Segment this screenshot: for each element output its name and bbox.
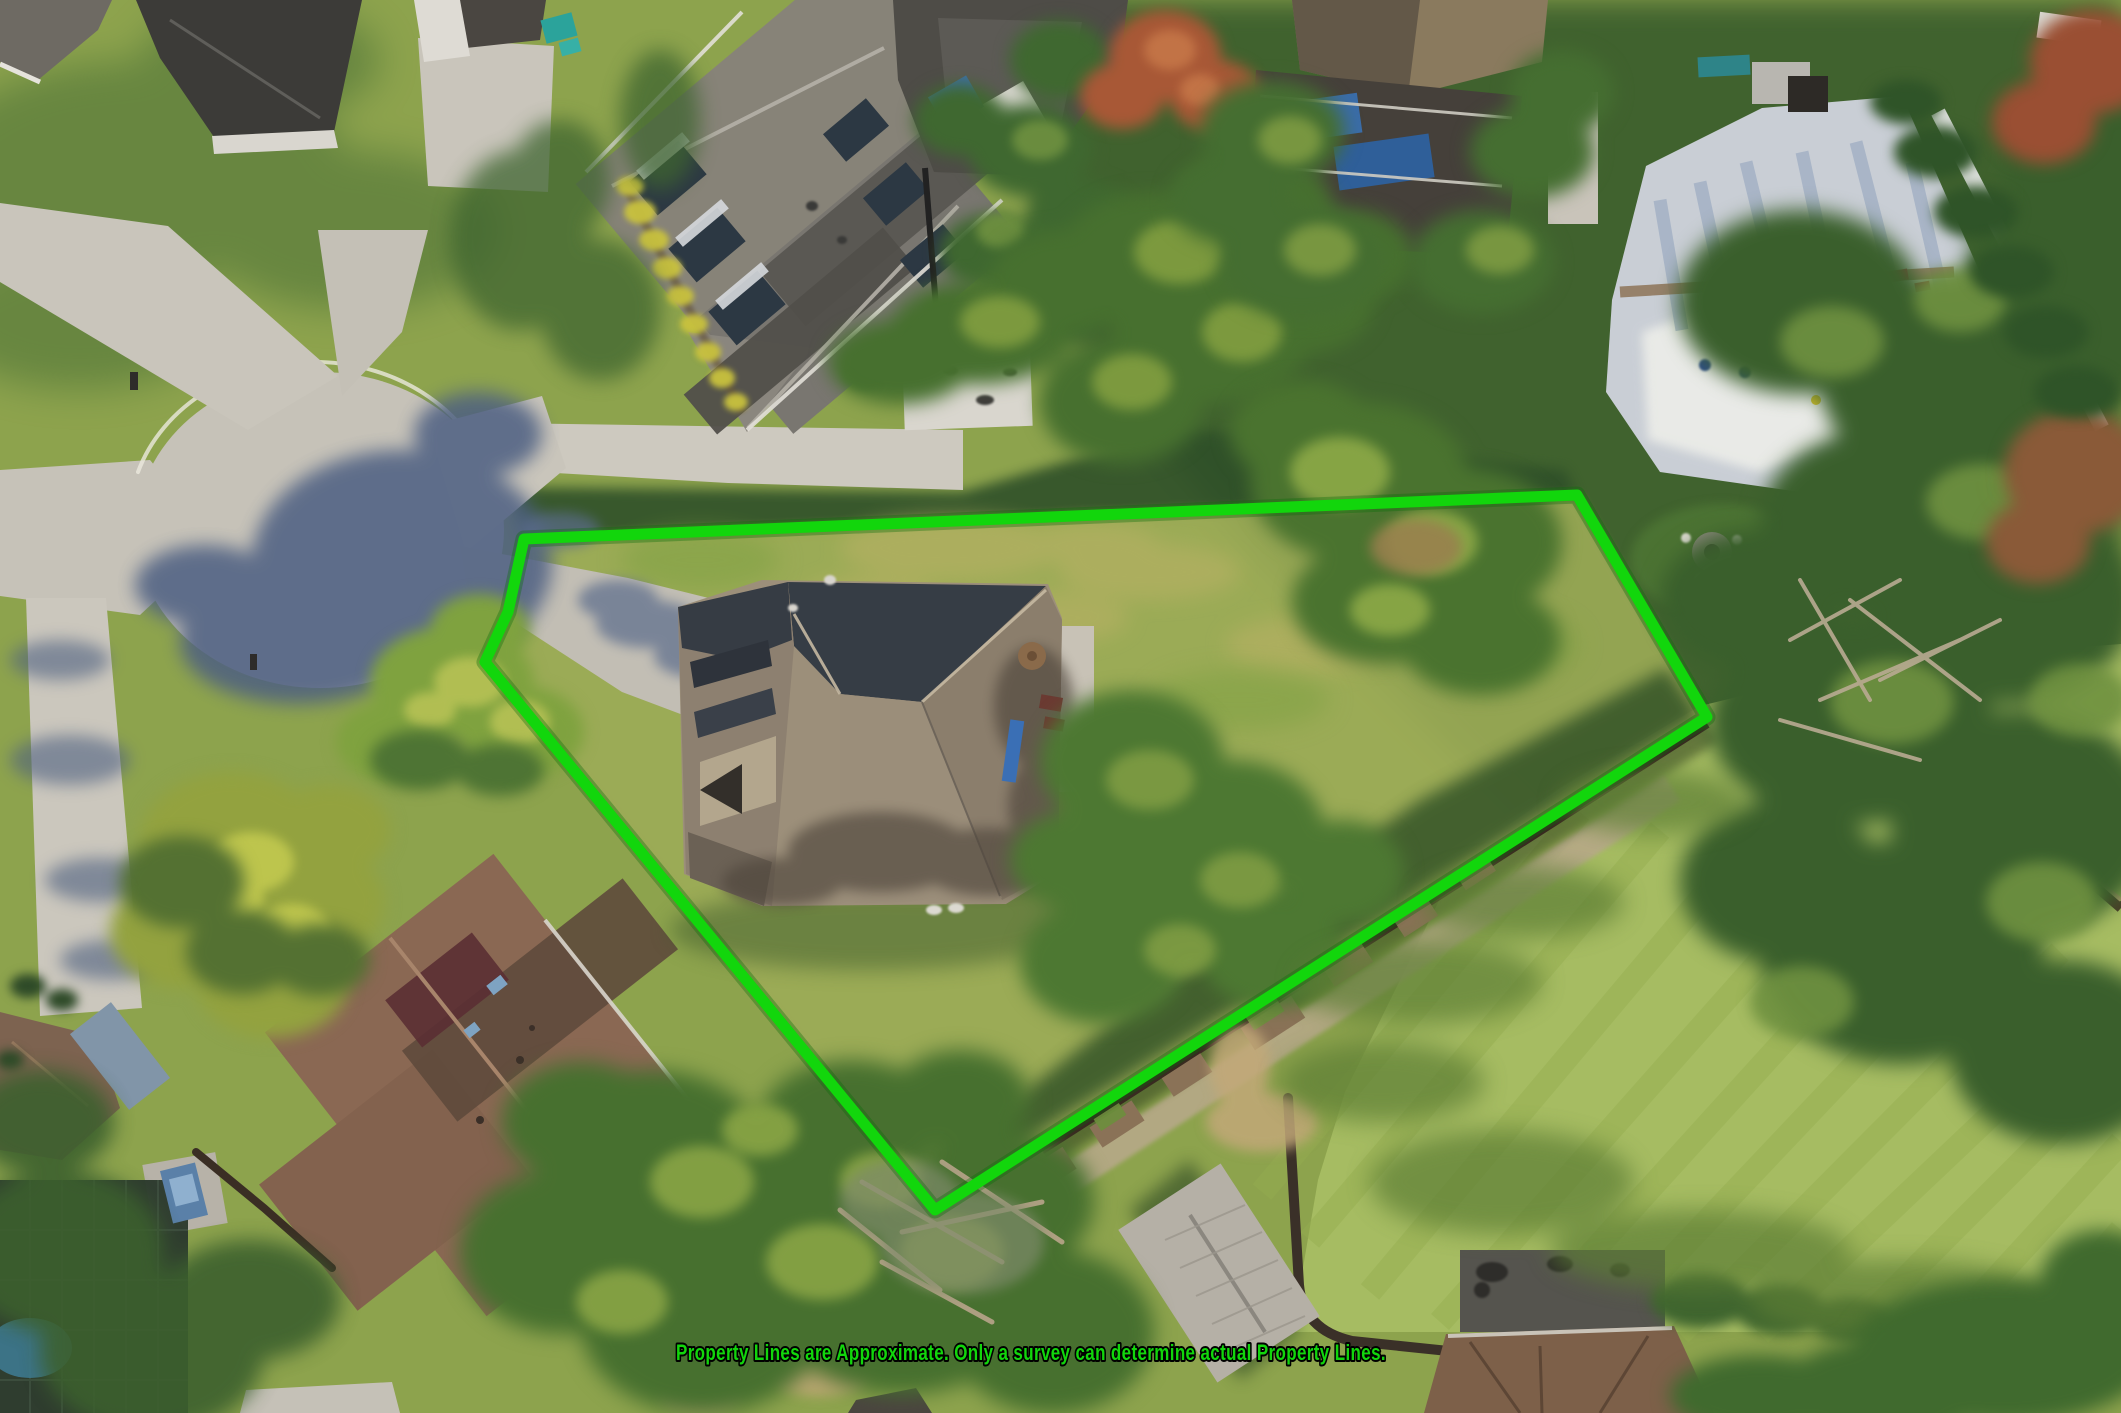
tree-dry-patch	[1370, 519, 1462, 575]
photo-layer	[0, 0, 2121, 1413]
reroof-chimney-hole	[1788, 76, 1828, 112]
reroof-worker-yellow	[1811, 395, 1821, 405]
teal-tarp-topright	[1698, 55, 1751, 78]
disclaimer-text: Property Lines are Approximate. Only a s…	[676, 1340, 1386, 1365]
aerial-photo: Property Lines are Approximate. Only a s…	[0, 0, 2121, 1413]
bottomright-roof	[1424, 1326, 1714, 1413]
umbrella-top	[1027, 651, 1037, 661]
screenshot-root: Property Lines are Approximate. Only a s…	[0, 0, 2121, 1413]
